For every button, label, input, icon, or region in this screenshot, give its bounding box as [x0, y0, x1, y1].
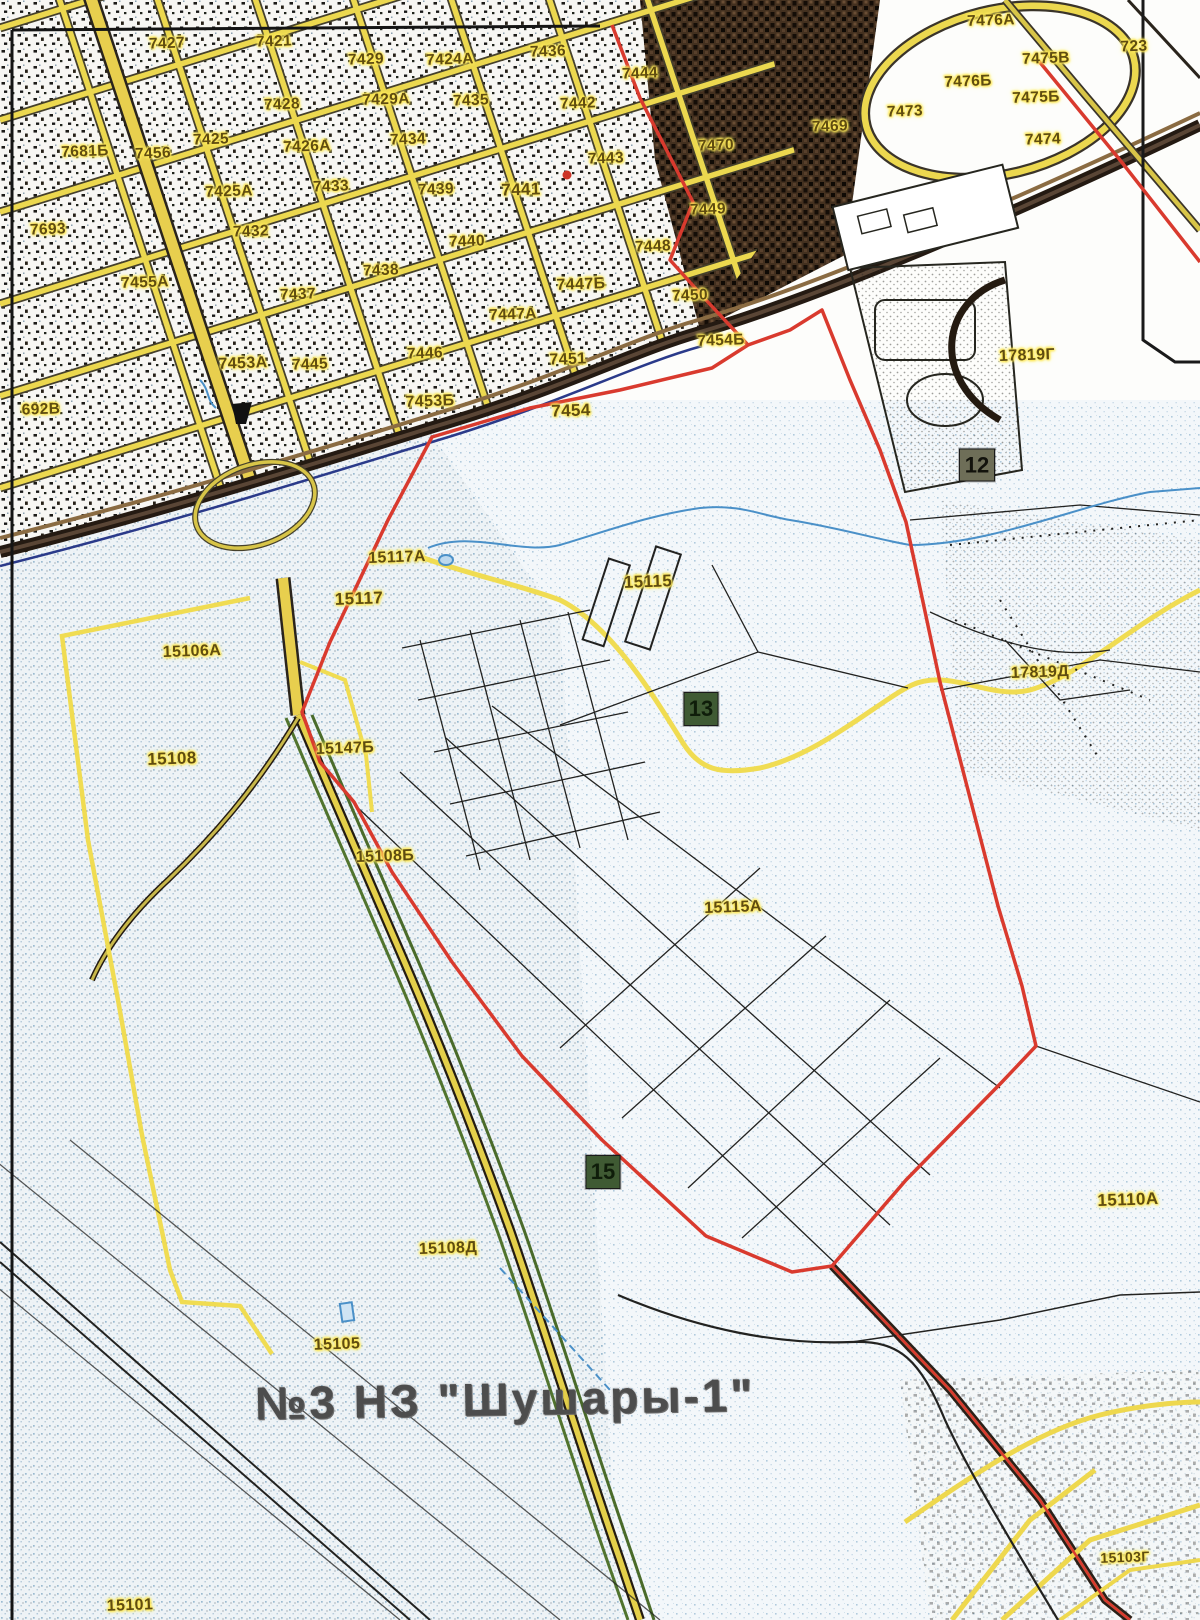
scanned-map-page: 7427742174297424А743674447429А7435744274… [0, 0, 1200, 1620]
pond [439, 555, 453, 565]
red-point [563, 171, 572, 180]
map-title: №3 НЗ "Шушары-1" [255, 1368, 756, 1431]
blue-building [340, 1302, 354, 1321]
